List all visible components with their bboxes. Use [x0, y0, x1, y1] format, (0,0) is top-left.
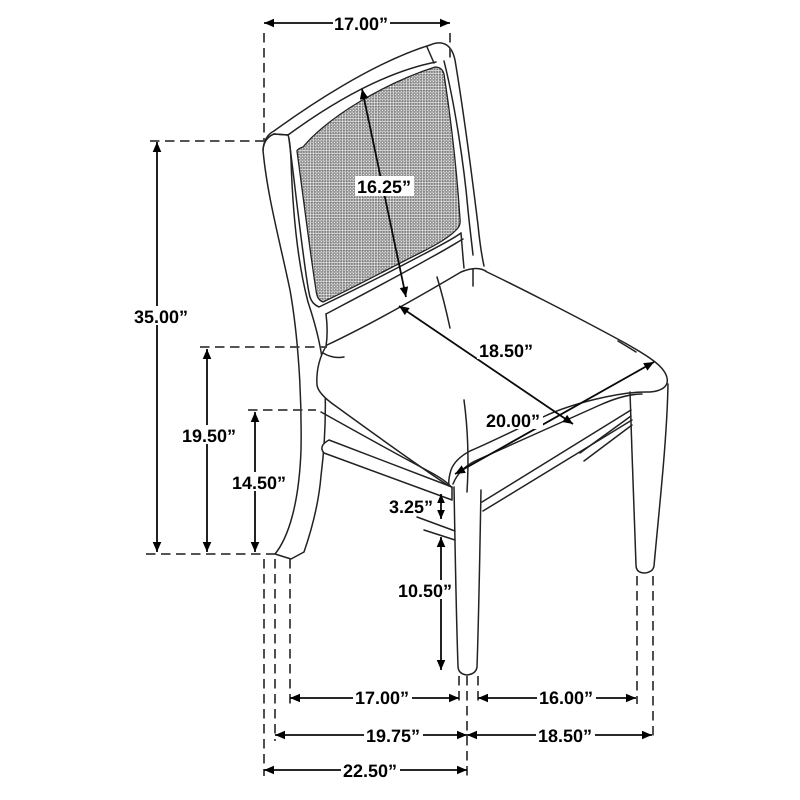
svg-text:20.00”: 20.00” — [486, 411, 540, 431]
svg-text:19.75”: 19.75” — [366, 726, 420, 746]
svg-text:17.00”: 17.00” — [334, 14, 388, 34]
svg-text:35.00”: 35.00” — [134, 307, 188, 327]
svg-text:18.50”: 18.50” — [479, 341, 533, 361]
svg-text:17.00”: 17.00” — [355, 688, 409, 708]
svg-text:10.50”: 10.50” — [398, 581, 452, 601]
svg-text:19.50”: 19.50” — [182, 426, 236, 446]
svg-text:18.50”: 18.50” — [538, 726, 592, 746]
svg-text:3.25”: 3.25” — [389, 497, 433, 517]
svg-text:16.25”: 16.25” — [357, 177, 411, 197]
svg-text:14.50”: 14.50” — [232, 473, 286, 493]
svg-text:16.00”: 16.00” — [539, 688, 593, 708]
svg-text:22.50”: 22.50” — [343, 761, 397, 781]
